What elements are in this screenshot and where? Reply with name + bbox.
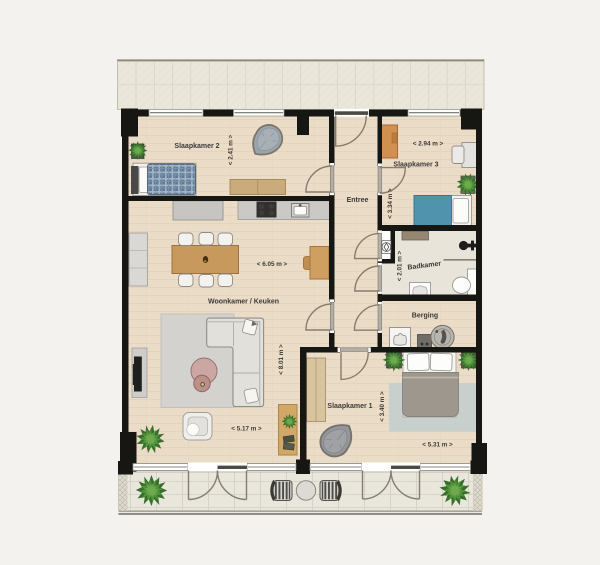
svg-text:Slaapkamer 1: Slaapkamer 1 xyxy=(327,403,372,410)
svg-text:Woonkamer / Keuken: Woonkamer / Keuken xyxy=(208,299,279,306)
svg-text:Slaapkamer 2: Slaapkamer 2 xyxy=(174,143,219,150)
svg-text:Slaapkamer 3: Slaapkamer 3 xyxy=(393,162,438,169)
svg-text:< 5.17 m >: < 5.17 m > xyxy=(231,426,262,433)
svg-text:Berging: Berging xyxy=(412,313,438,320)
svg-text:< 3.40 m >: < 3.40 m > xyxy=(379,391,386,422)
svg-text:< 2.94 m >: < 2.94 m > xyxy=(413,141,444,148)
svg-text:< 3.34 m >: < 3.34 m > xyxy=(387,188,394,219)
svg-text:< 8.01 m >: < 8.01 m > xyxy=(278,344,285,375)
svg-text:< 5.31 m >: < 5.31 m > xyxy=(422,442,453,449)
svg-text:< 2.41 m >: < 2.41 m > xyxy=(228,134,235,165)
svg-text:< 6.05 m >: < 6.05 m > xyxy=(257,261,288,268)
svg-text:< 2.01 m >: < 2.01 m > xyxy=(397,250,404,281)
svg-text:Entree: Entree xyxy=(347,197,369,204)
